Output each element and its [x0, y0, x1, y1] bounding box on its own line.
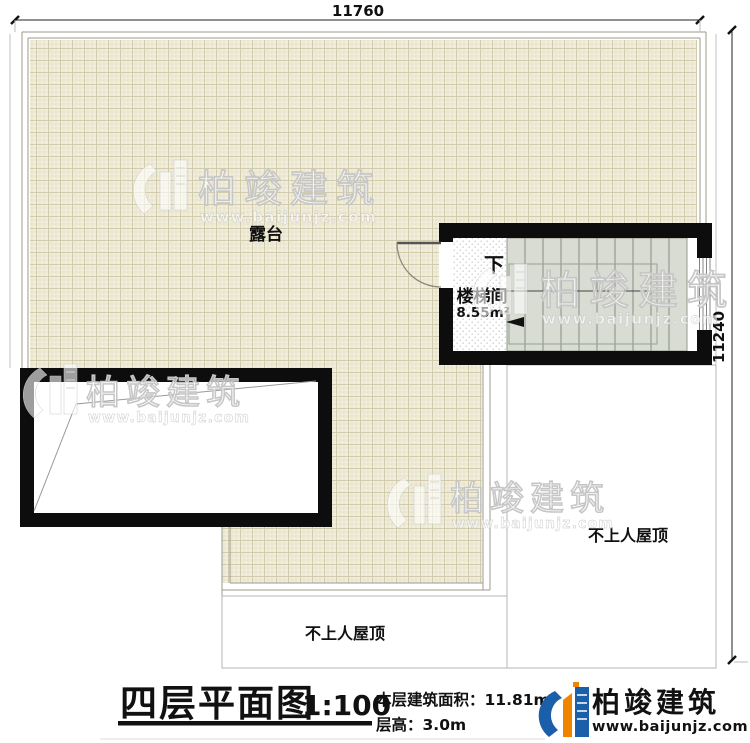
door-opening [439, 242, 453, 288]
roof-bottom-label: 不上人屋顶 [305, 624, 385, 643]
floor-plan-page: 露台 不上人屋顶 不上人屋顶 [0, 0, 750, 743]
dimension-top-label: 11760 [332, 2, 384, 20]
watermark-url: www.baijunjz.com [200, 208, 377, 226]
watermark-text: 柏竣建筑 [198, 167, 382, 211]
floor-plan-canvas: 露台 不上人屋顶 不上人屋顶 [0, 0, 750, 743]
floor-area-label: 本层建筑面积： [376, 690, 485, 709]
logo-text: 柏竣建筑 [592, 686, 720, 719]
title-block: 四层平面图 1:100 本层建筑面积：11.81m² 层高：3.0m [100, 682, 556, 739]
watermark-text: 柏竣建筑 [540, 268, 736, 314]
floor-height-label: 层高： [376, 715, 423, 734]
watermark-text: 柏竣建筑 [86, 373, 246, 413]
plan-title: 四层平面图 [120, 682, 315, 725]
floor-area-text: 本层建筑面积：11.81m² [376, 690, 556, 709]
logo-url: www.baijunjz.com [592, 719, 748, 735]
watermark-url: www.baijunjz.com [542, 310, 719, 328]
watermark-url: www.baijunjz.com [88, 410, 250, 426]
building-cutout [10, 527, 222, 596]
terrace-label: 露台 [249, 224, 283, 245]
company-logo: 柏竣建筑 www.baijunjz.com [539, 682, 748, 737]
floor-height-text: 层高：3.0m [376, 715, 466, 734]
watermark-url: www.baijunjz.com [452, 516, 614, 532]
floor-height-value: 3.0m [423, 716, 467, 734]
watermark-text: 柏竣建筑 [450, 479, 610, 519]
